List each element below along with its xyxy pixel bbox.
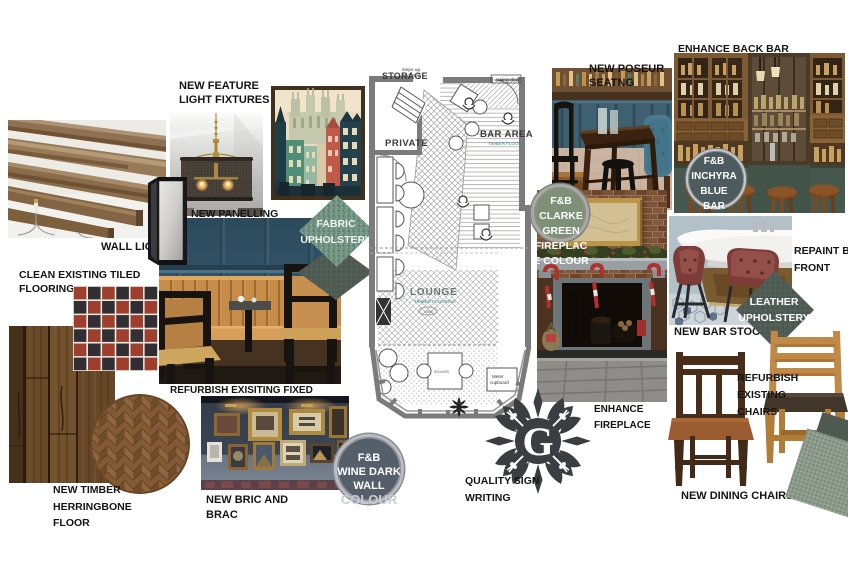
svg-text:BAR AREA: BAR AREA	[480, 129, 533, 140]
svg-text:cupboard: cupboard	[490, 380, 509, 385]
svg-text:Meter: Meter	[492, 374, 504, 379]
svg-text:PRIVATE: PRIVATE	[385, 138, 428, 149]
svg-text:G: G	[522, 419, 553, 464]
svg-text:steps up: steps up	[402, 67, 420, 73]
svg-text:TIMBER FLOOR: TIMBER FLOOR	[488, 141, 523, 146]
svg-text:TIMBER FLOORING: TIMBER FLOORING	[414, 299, 456, 304]
svg-text:1986: 1986	[424, 309, 434, 314]
svg-text:swing door: swing door	[496, 78, 521, 84]
svg-text:900x900: 900x900	[434, 369, 450, 374]
svg-text:LOUNGE: LOUNGE	[410, 287, 458, 298]
svg-text:1000mm: 1000mm	[402, 73, 421, 79]
